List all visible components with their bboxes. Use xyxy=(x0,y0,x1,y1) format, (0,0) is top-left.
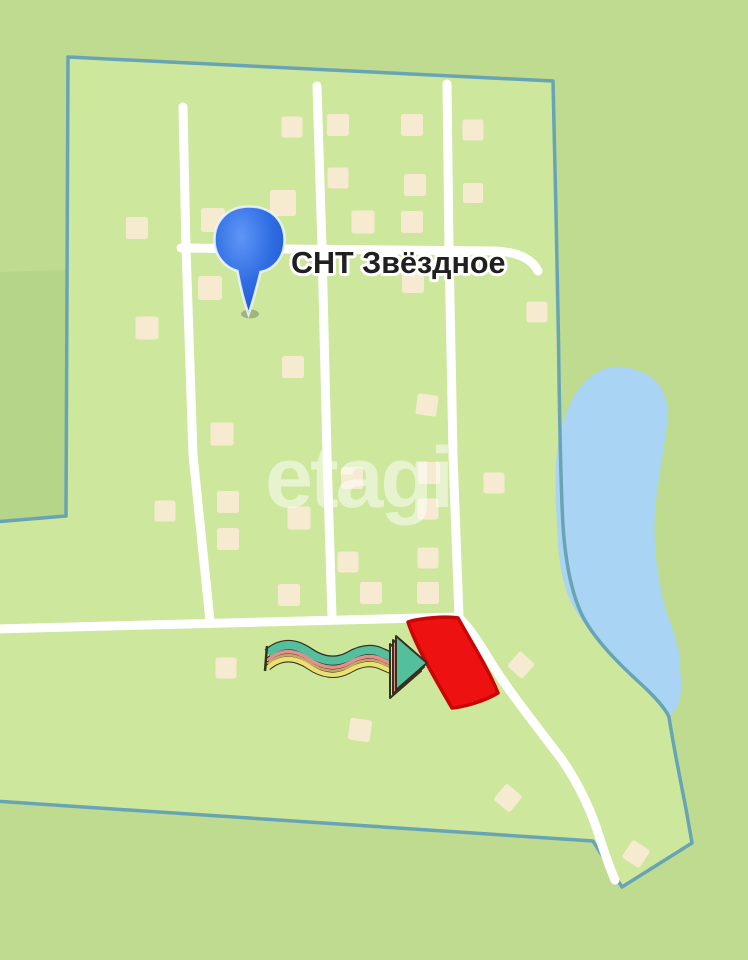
house-marker xyxy=(211,423,234,446)
house-marker xyxy=(415,393,439,417)
map-canvas[interactable]: etagi СНТ Звёздное xyxy=(0,0,748,960)
house-marker xyxy=(338,552,359,573)
house-marker xyxy=(216,658,237,679)
house-marker xyxy=(155,501,176,522)
house-marker xyxy=(217,491,239,513)
house-marker xyxy=(282,356,304,378)
house-marker xyxy=(484,473,505,494)
house-marker xyxy=(327,114,349,136)
house-marker xyxy=(463,120,484,141)
house-marker xyxy=(527,302,548,323)
house-marker xyxy=(136,317,159,340)
house-marker xyxy=(404,174,426,196)
house-marker xyxy=(217,528,239,550)
house-marker xyxy=(328,168,349,189)
house-marker xyxy=(418,548,439,569)
watermark-text: etagi xyxy=(265,430,451,526)
house-marker xyxy=(282,117,303,138)
house-marker xyxy=(348,718,373,743)
house-marker xyxy=(401,211,423,233)
house-marker xyxy=(126,217,148,239)
house-marker xyxy=(463,183,483,203)
house-marker xyxy=(352,211,375,234)
house-marker xyxy=(401,114,423,136)
house-marker xyxy=(278,584,300,606)
snt-name-label: СНТ Звёздное xyxy=(291,246,506,280)
map-screenshot: etagi СНТ Звёздное xyxy=(0,0,748,960)
house-marker xyxy=(360,582,382,604)
house-marker xyxy=(198,276,222,300)
house-marker xyxy=(417,582,439,604)
forest-area xyxy=(0,270,66,521)
house-marker xyxy=(270,190,296,216)
